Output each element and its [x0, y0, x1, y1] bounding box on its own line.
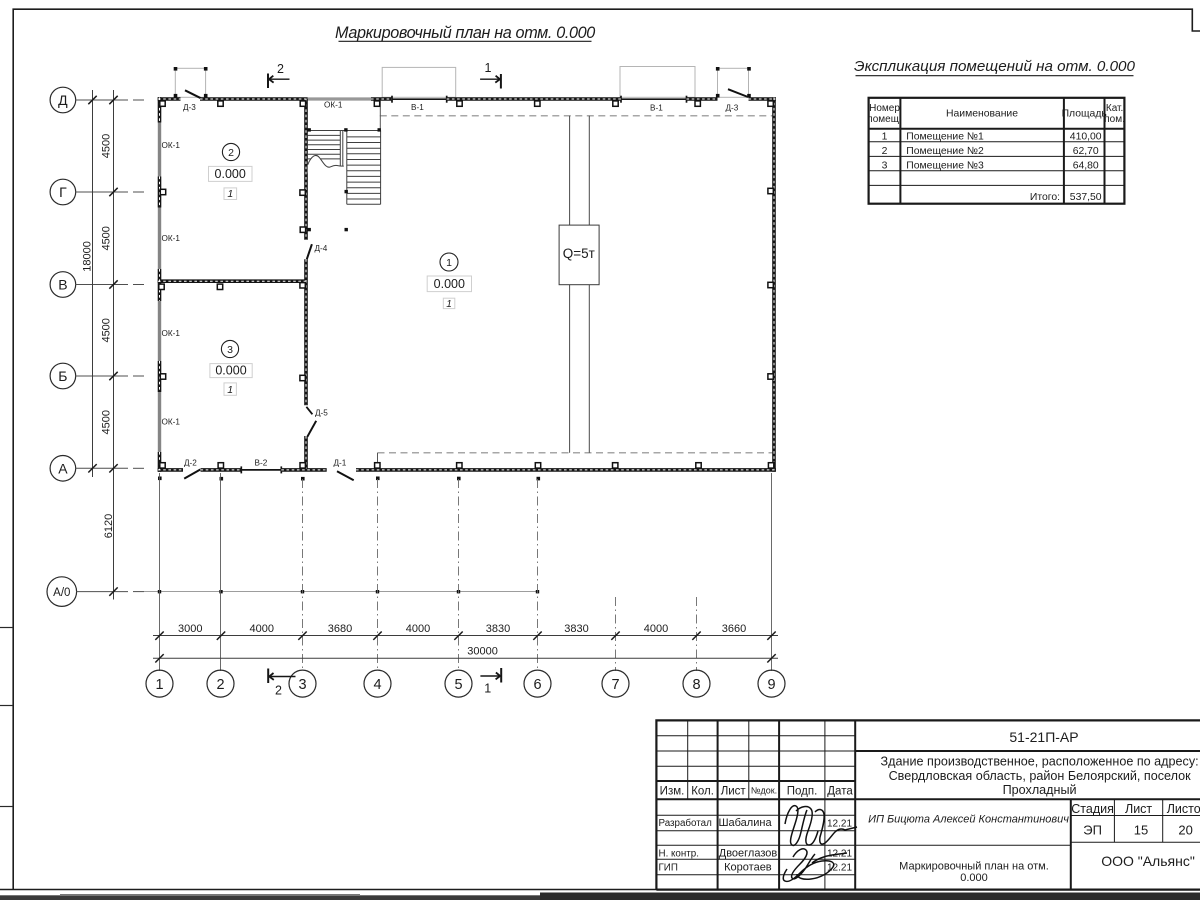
svg-text:ОК-1: ОК-1 [162, 329, 181, 338]
svg-text:Экспликация помещений на отм.: Экспликация помещений на отм. 0.000 [854, 58, 1135, 75]
svg-text:ИП Бицюта Алексей Константинов: ИП Бицюта Алексей Константинович [868, 814, 1069, 826]
svg-text:Маркировочный план на отм. 0.0: Маркировочный план на отм. 0.000 [335, 24, 595, 42]
svg-text:ОК-1: ОК-1 [162, 418, 181, 427]
svg-text:Д-5: Д-5 [315, 409, 328, 418]
svg-text:3: 3 [298, 677, 306, 693]
svg-text:12.21: 12.21 [827, 863, 852, 874]
svg-text:7: 7 [611, 677, 619, 693]
svg-text:20: 20 [1178, 823, 1192, 838]
svg-text:1: 1 [446, 299, 452, 310]
svg-text:Листов: Листов [1167, 802, 1200, 816]
svg-text:64,80: 64,80 [1073, 161, 1099, 172]
svg-text:6: 6 [533, 677, 541, 693]
svg-text:Наименование: Наименование [946, 109, 1018, 120]
svg-text:3830: 3830 [486, 623, 510, 635]
svg-text:А/0: А/0 [53, 587, 70, 599]
svg-text:4500: 4500 [101, 226, 113, 250]
svg-text:6120: 6120 [103, 514, 115, 538]
svg-text:ЭП: ЭП [1083, 823, 1102, 838]
svg-text:3660: 3660 [722, 623, 746, 635]
svg-text:15: 15 [1134, 823, 1148, 838]
svg-text:Шабалина: Шабалина [718, 817, 772, 829]
svg-text:В-1: В-1 [650, 104, 663, 113]
svg-text:ООО "Альянс": ООО "Альянс" [1101, 853, 1195, 869]
svg-text:0.000: 0.000 [215, 364, 246, 378]
svg-text:ОК-1: ОК-1 [162, 234, 181, 243]
svg-text:2: 2 [882, 146, 888, 157]
svg-text:8: 8 [692, 677, 700, 693]
svg-text:помещ.: помещ. [867, 114, 901, 125]
svg-text:Изм.: Изм. [660, 786, 685, 798]
svg-text:Кат.: Кат. [1106, 103, 1123, 114]
svg-text:5: 5 [454, 677, 462, 693]
svg-text:Помещение №1: Помещение №1 [906, 131, 984, 142]
svg-text:9: 9 [767, 677, 775, 693]
svg-text:1: 1 [446, 257, 452, 269]
svg-text:В-1: В-1 [411, 103, 424, 112]
svg-text:Коротаев: Коротаев [724, 861, 772, 873]
svg-text:62,70: 62,70 [1073, 146, 1099, 157]
svg-text:4500: 4500 [101, 318, 113, 342]
svg-text:Прохладный: Прохладный [1003, 783, 1077, 797]
svg-text:Лист: Лист [721, 786, 747, 798]
svg-text:51-21П-АР: 51-21П-АР [1009, 729, 1078, 745]
svg-text:Номер: Номер [869, 103, 900, 114]
svg-text:Д: Д [58, 92, 68, 108]
svg-text:Кол.: Кол. [691, 786, 714, 798]
svg-text:0.000: 0.000 [434, 277, 465, 291]
svg-text:3680: 3680 [328, 623, 352, 635]
svg-text:3: 3 [882, 161, 888, 172]
svg-text:4000: 4000 [406, 623, 430, 635]
svg-text:Д-1: Д-1 [334, 459, 347, 468]
svg-text:Свердловская область, район Бе: Свердловская область, район Белоярский, … [889, 769, 1192, 783]
svg-text:2: 2 [277, 62, 284, 76]
svg-text:2: 2 [275, 683, 282, 697]
svg-text:А: А [58, 460, 68, 476]
svg-text:1: 1 [155, 677, 163, 693]
svg-text:12.21: 12.21 [827, 819, 852, 830]
svg-text:Здание производственное, распо: Здание производственное, расположенное п… [881, 755, 1199, 769]
svg-text:ОК-1: ОК-1 [324, 101, 343, 110]
svg-text:пом.: пом. [1104, 114, 1125, 125]
svg-text:Б: Б [58, 368, 67, 384]
svg-text:30000: 30000 [467, 646, 498, 658]
svg-text:Маркировочный план на отм.: Маркировочный план на отм. [899, 861, 1049, 873]
svg-text:ГИП: ГИП [659, 862, 678, 873]
svg-text:Д-4: Д-4 [315, 244, 328, 253]
svg-text:В: В [58, 277, 67, 293]
svg-text:4000: 4000 [250, 623, 274, 635]
svg-text:В-2: В-2 [255, 459, 268, 468]
svg-text:Двоеглазов: Двоеглазов [719, 848, 778, 860]
svg-text:Итого:: Итого: [1030, 192, 1060, 203]
svg-text:1: 1 [227, 188, 233, 200]
svg-text:Площадь: Площадь [1062, 109, 1107, 120]
svg-text:0.000: 0.000 [960, 872, 988, 884]
svg-text:Помещение №2: Помещение №2 [906, 146, 984, 157]
svg-text:Q=5т: Q=5т [563, 246, 595, 261]
svg-text:Д-3: Д-3 [183, 103, 196, 112]
svg-text:410,00: 410,00 [1070, 131, 1102, 142]
svg-text:4000: 4000 [644, 623, 668, 635]
svg-text:0.000: 0.000 [215, 167, 246, 181]
svg-text:3000: 3000 [178, 623, 202, 635]
svg-text:ОК-1: ОК-1 [162, 141, 181, 150]
svg-text:Лист: Лист [1125, 802, 1152, 816]
svg-text:1: 1 [485, 61, 492, 75]
svg-text:1: 1 [882, 131, 888, 142]
svg-text:2: 2 [228, 147, 234, 159]
svg-text:4500: 4500 [101, 134, 113, 158]
svg-text:3: 3 [227, 344, 233, 356]
svg-text:Д-2: Д-2 [184, 459, 197, 468]
svg-text:№док.: №док. [751, 786, 777, 796]
svg-text:1: 1 [484, 681, 491, 695]
svg-text:Стадия: Стадия [1071, 802, 1114, 816]
svg-text:18000: 18000 [82, 241, 94, 272]
svg-text:Дата: Дата [827, 786, 853, 798]
svg-text:2: 2 [216, 677, 224, 693]
svg-text:Н. контр.: Н. контр. [659, 849, 699, 860]
svg-text:4500: 4500 [101, 410, 113, 434]
svg-text:3830: 3830 [564, 623, 588, 635]
svg-text:Подп.: Подп. [787, 786, 818, 798]
svg-text:Д-3: Д-3 [726, 104, 739, 113]
svg-text:537,50: 537,50 [1070, 192, 1102, 203]
svg-text:1: 1 [227, 384, 233, 396]
svg-text:Разработал: Разработал [659, 818, 713, 829]
svg-text:4: 4 [373, 677, 381, 693]
svg-text:Помещение №3: Помещение №3 [906, 161, 984, 172]
svg-text:Г: Г [59, 184, 67, 200]
